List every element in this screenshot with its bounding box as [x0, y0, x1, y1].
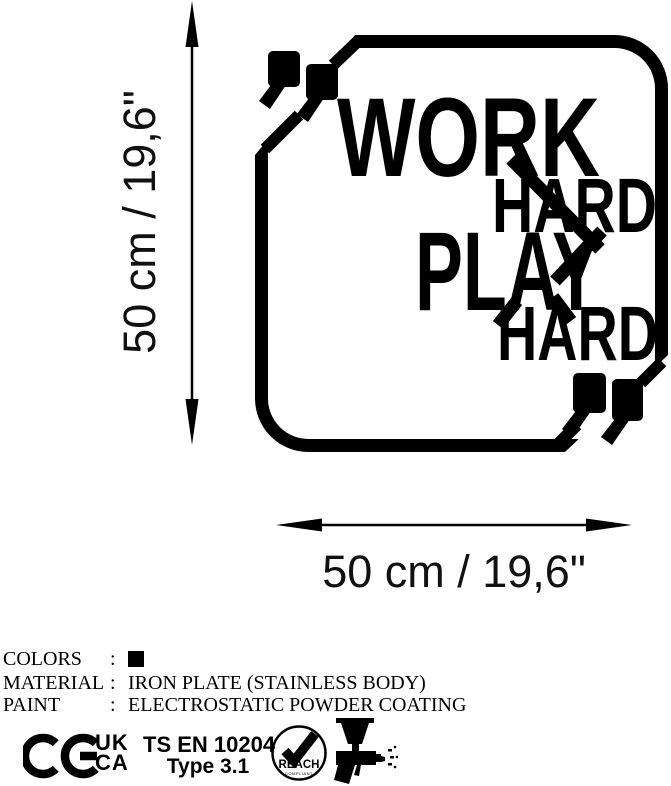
spec-label: COLORS: [3, 648, 110, 670]
art-word-hard-2: HARD: [497, 291, 658, 377]
ukca-mark: UK CA: [95, 733, 129, 773]
spec-separator: :: [110, 694, 128, 716]
product-dimension-diagram: 50 cm / 19,6": [0, 0, 671, 786]
width-dimension-label: 50 cm / 19,6": [275, 546, 633, 598]
standard-certification-text: TS EN 10204 Type 3.1: [143, 734, 273, 777]
spec-separator: :: [110, 648, 128, 670]
reach-label: REACH: [279, 759, 320, 771]
arrow-right-icon: [586, 519, 632, 532]
spec-row-paint: PAINT : ELECTROSTATIC POWDER COATING: [3, 694, 503, 716]
spec-value: ELECTROSTATIC POWDER COATING: [128, 694, 503, 716]
ukca-line-ca: CA: [95, 753, 129, 773]
reach-sub-label: COMPLIANT: [285, 771, 313, 776]
spec-label: PAINT: [3, 694, 110, 716]
horizontal-dimension-arrow: [275, 512, 633, 538]
spec-label: MATERIAL: [3, 672, 110, 694]
spec-row-colors: COLORS :: [3, 648, 503, 672]
spec-value: [128, 648, 503, 672]
check-icon: [285, 734, 315, 761]
arrow-left-icon: [276, 519, 322, 532]
standard-name: TS EN 10204: [143, 734, 273, 756]
spec-separator: :: [110, 672, 128, 694]
spray-gun-icon: [332, 716, 398, 784]
spec-row-material: MATERIAL : IRON PLATE (STAINLESS BODY): [3, 672, 503, 694]
color-swatch: [128, 651, 144, 667]
arrow-up-icon: [186, 1, 199, 47]
spec-value: IRON PLATE (STAINLESS BODY): [128, 672, 503, 694]
standard-type: Type 3.1: [143, 756, 273, 777]
height-dimension-label: 50 cm / 19,6": [114, 42, 166, 402]
arrow-down-icon: [186, 399, 199, 445]
reach-compliant-badge-icon: REACH COMPLIANT: [270, 724, 328, 782]
vertical-dimension-arrow: [178, 0, 206, 446]
wall-art-work-hard-play-hard: WORK HARD PLAY HARD: [255, 35, 668, 452]
spec-table: COLORS : MATERIAL : IRON PLATE (STAINLES…: [3, 648, 503, 716]
